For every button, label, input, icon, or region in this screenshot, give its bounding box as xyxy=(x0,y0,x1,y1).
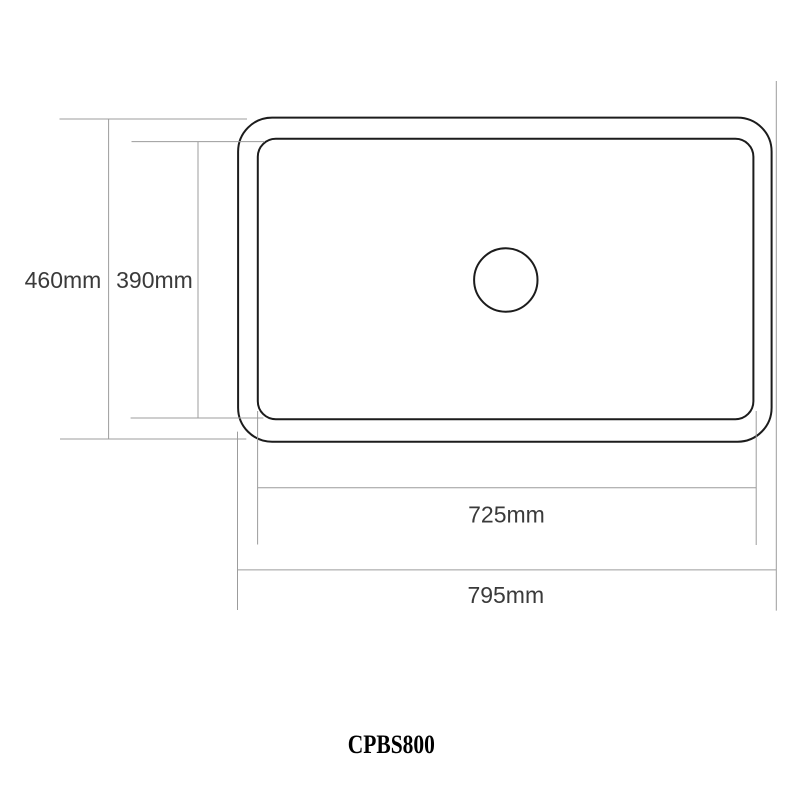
svg-text:725mm: 725mm xyxy=(468,502,545,528)
svg-text:CPBS800: CPBS800 xyxy=(348,731,435,760)
svg-text:460mm: 460mm xyxy=(25,267,102,293)
svg-text:390mm: 390mm xyxy=(116,267,193,293)
svg-text:795mm: 795mm xyxy=(467,582,544,608)
